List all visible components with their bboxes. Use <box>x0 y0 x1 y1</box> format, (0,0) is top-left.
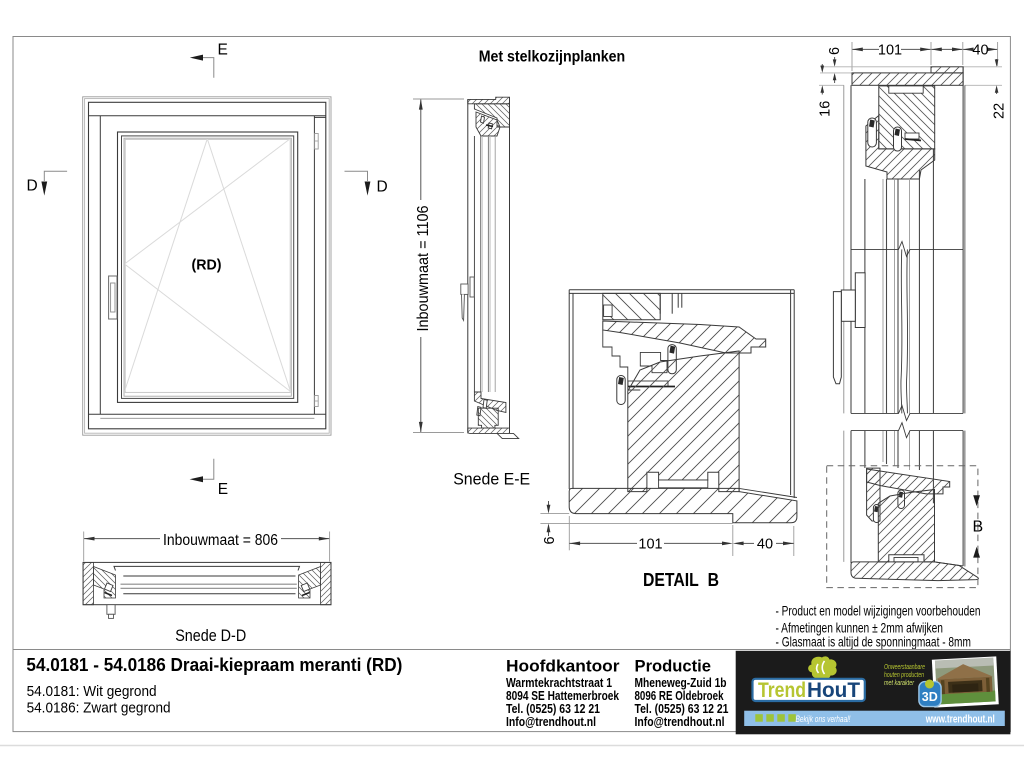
svg-text:Info@trendhout.nl: Info@trendhout.nl <box>506 714 596 729</box>
svg-text:D: D <box>377 179 388 196</box>
svg-text:(RD): (RD) <box>192 258 222 274</box>
svg-text:E: E <box>218 42 228 59</box>
svg-text:Hoofdkantoor: Hoofdkantoor <box>506 657 620 676</box>
svg-text:6: 6 <box>827 47 843 55</box>
svg-text:22: 22 <box>992 103 1008 119</box>
svg-text:101: 101 <box>638 537 662 553</box>
svg-text:Inbouwmaat = 806: Inbouwmaat = 806 <box>163 532 278 549</box>
svg-text:54.0186: Zwart gegrond: 54.0186: Zwart gegrond <box>27 700 171 717</box>
svg-text:6: 6 <box>542 536 558 544</box>
svg-text:54.0181: Wit gegrond: 54.0181: Wit gegrond <box>27 683 157 700</box>
svg-text:HouT: HouT <box>807 679 860 702</box>
svg-text:3D: 3D <box>922 690 938 704</box>
svg-text:40: 40 <box>972 43 988 59</box>
svg-text:B: B <box>973 519 984 536</box>
svg-text:D: D <box>27 178 38 195</box>
svg-text:Bekijk ons verhaal!: Bekijk ons verhaal! <box>796 714 851 725</box>
svg-text:Onweerstaanbare: Onweerstaanbare <box>884 664 925 671</box>
svg-text:16: 16 <box>817 101 833 117</box>
svg-text:Productie: Productie <box>635 657 712 676</box>
svg-text:Met stelkozijnplanken: Met stelkozijnplanken <box>479 49 626 66</box>
svg-text:DETAIL B: DETAIL B <box>643 569 719 590</box>
svg-text:met karakter: met karakter <box>884 680 915 687</box>
svg-text:101: 101 <box>878 43 902 59</box>
svg-text:houten producten: houten producten <box>884 672 924 679</box>
svg-text:Info@trendhout.nl: Info@trendhout.nl <box>635 714 725 729</box>
svg-text:- Product en model wijzigingen: - Product en model wijzigingen voorbehou… <box>776 603 981 619</box>
svg-text:www.trendhout.nl: www.trendhout.nl <box>925 714 995 726</box>
svg-text:Inbouwmaat = 1106: Inbouwmaat = 1106 <box>415 206 432 332</box>
svg-text:- Glasmaat is altijd de sponni: - Glasmaat is altijd de sponningmaat - 8… <box>776 634 971 650</box>
svg-text:40: 40 <box>757 537 773 553</box>
svg-text:54.0181 - 54.0186 Draai-kiepra: 54.0181 - 54.0186 Draai-kiepraam meranti… <box>26 655 402 675</box>
svg-text:Snede E-E: Snede E-E <box>453 470 530 489</box>
svg-text:Trend: Trend <box>758 679 806 702</box>
svg-text:Snede D-D: Snede D-D <box>175 626 246 645</box>
svg-text:E: E <box>218 481 228 498</box>
